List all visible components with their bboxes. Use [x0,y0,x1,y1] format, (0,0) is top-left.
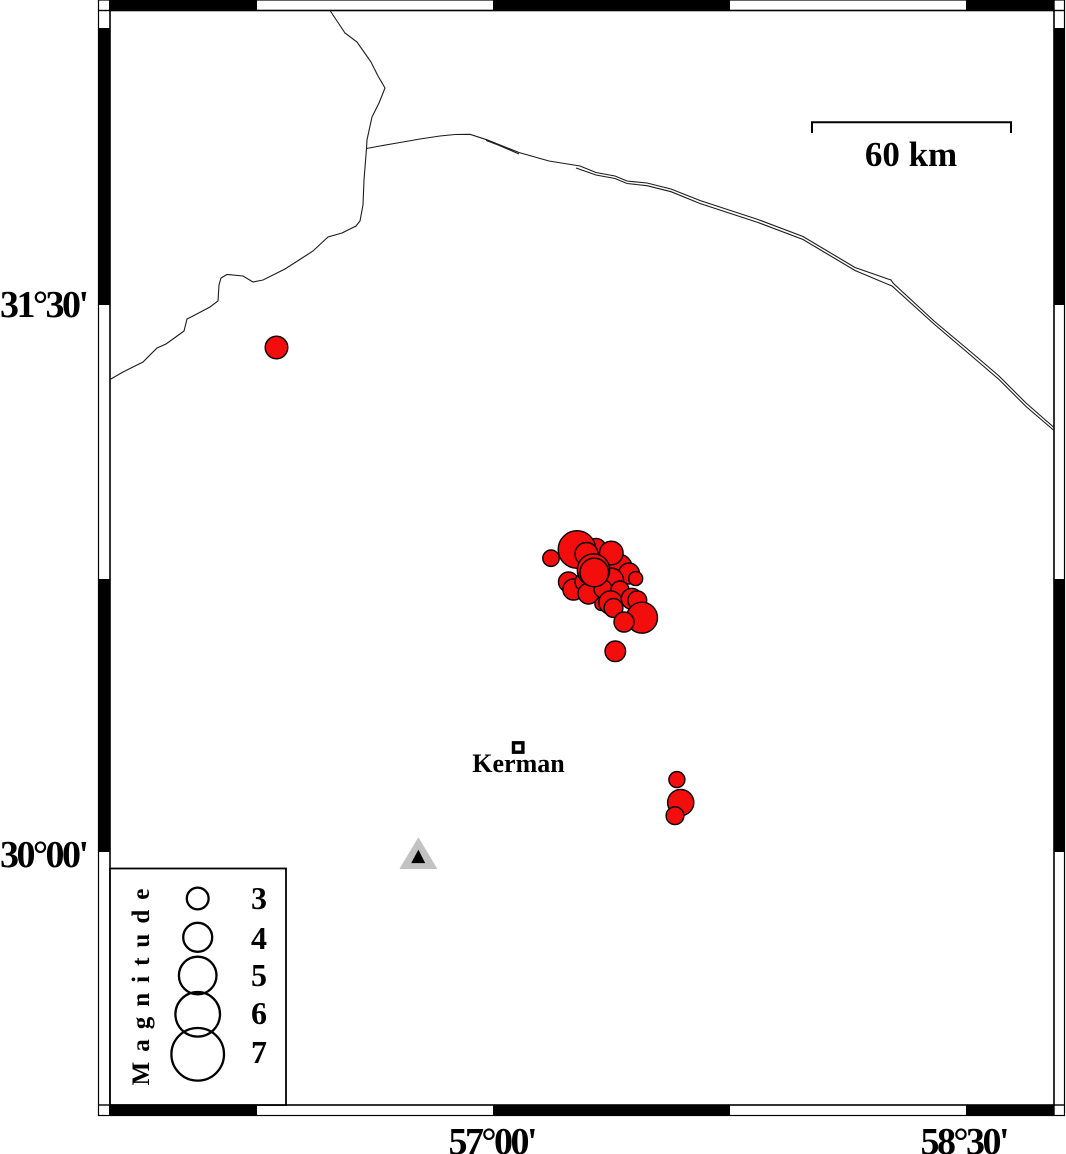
svg-text:Kerman: Kerman [472,749,565,778]
svg-text:57°00': 57°00' [449,1121,538,1154]
svg-text:7: 7 [251,1034,267,1070]
svg-text:4: 4 [251,920,267,956]
svg-text:60 km: 60 km [865,135,957,174]
svg-text:5: 5 [251,957,267,993]
svg-text:30°00': 30°00' [0,834,89,876]
svg-text:58°30': 58°30' [921,1121,1010,1154]
svg-text:3: 3 [251,880,267,916]
svg-text:31°30': 31°30' [0,284,89,326]
svg-text:Magnitude: Magnitude [128,879,155,1086]
svg-text:6: 6 [251,995,267,1031]
